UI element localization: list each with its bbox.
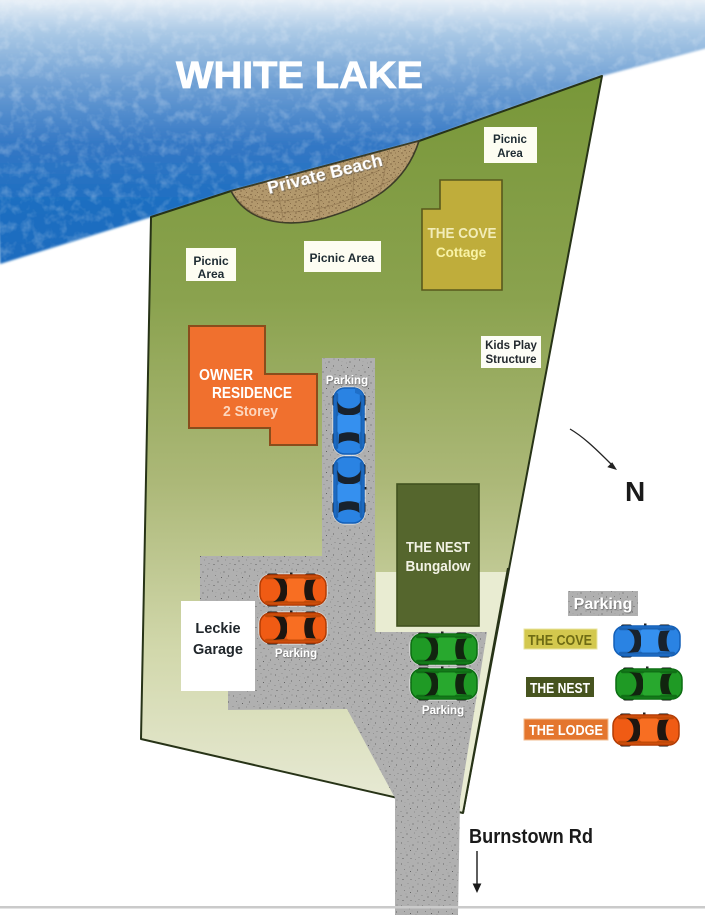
svg-text:OWNER: OWNER [199, 367, 253, 384]
svg-text:Kids Play: Kids Play [485, 340, 537, 352]
svg-text:Picnic Area: Picnic Area [310, 251, 375, 265]
svg-text:Picnic: Picnic [193, 254, 229, 268]
svg-text:THE COVE: THE COVE [528, 633, 592, 649]
svg-text:WHITE LAKE: WHITE LAKE [176, 55, 423, 97]
svg-text:N: N [625, 476, 645, 507]
svg-text:THE COVE: THE COVE [428, 226, 497, 242]
svg-text:Cottage: Cottage [436, 245, 487, 260]
svg-text:Parking: Parking [326, 375, 368, 387]
svg-text:Leckie: Leckie [195, 621, 240, 637]
svg-text:Burnstown Rd: Burnstown Rd [469, 826, 593, 848]
svg-text:2 Storey: 2 Storey [223, 403, 279, 420]
svg-text:Area: Area [497, 148, 523, 160]
svg-text:THE NEST: THE NEST [406, 540, 470, 556]
svg-text:Garage: Garage [193, 642, 243, 658]
svg-text:Parking: Parking [275, 648, 317, 660]
svg-text:Bungalow: Bungalow [406, 559, 472, 575]
svg-text:THE LODGE: THE LODGE [529, 723, 603, 739]
svg-text:Parking: Parking [422, 705, 464, 717]
svg-text:Parking: Parking [574, 596, 633, 613]
svg-text:Structure: Structure [485, 354, 536, 366]
svg-text:THE NEST: THE NEST [530, 681, 590, 697]
svg-text:Area: Area [198, 267, 225, 281]
svg-text:Picnic: Picnic [493, 134, 527, 146]
svg-text:RESIDENCE: RESIDENCE [212, 385, 292, 402]
